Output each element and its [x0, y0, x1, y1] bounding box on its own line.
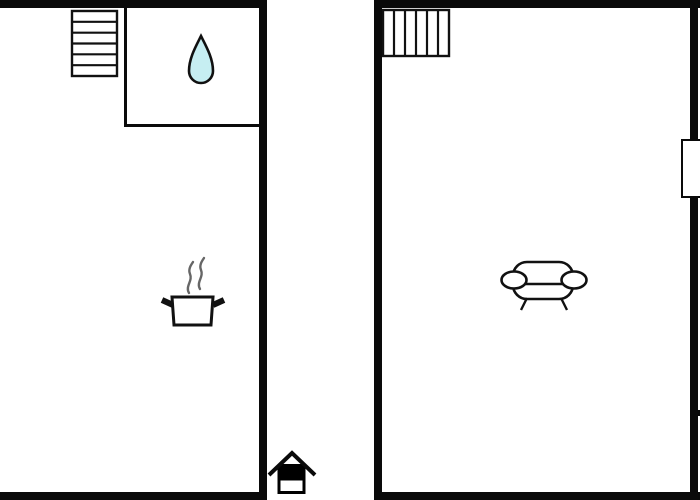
bathroom-partition-horizontal: [124, 124, 259, 127]
floor-plan: [0, 0, 700, 500]
steam-line: [188, 262, 193, 293]
right-room-top-wall: [374, 0, 700, 8]
bathroom-partition-vertical: [124, 8, 127, 127]
steam-line: [199, 258, 204, 289]
window: [681, 139, 700, 198]
left-room-bottom-wall: [0, 492, 267, 500]
right-room-bottom-wall: [374, 492, 700, 500]
water-drop-icon: [186, 33, 216, 87]
right-room-left-wall: [374, 0, 382, 500]
left-room-right-wall: [259, 0, 267, 500]
house-entrance-icon: [264, 446, 320, 498]
right-room-right-wall-lower: [690, 196, 698, 492]
staircase-vertical-icon: [381, 8, 451, 58]
right-room-right-wall-upper: [690, 0, 698, 141]
left-room-top-wall: [0, 0, 267, 8]
staircase-horizontal-icon: [70, 9, 119, 78]
sofa-icon: [494, 251, 596, 313]
cooking-pot-icon: [158, 256, 228, 328]
